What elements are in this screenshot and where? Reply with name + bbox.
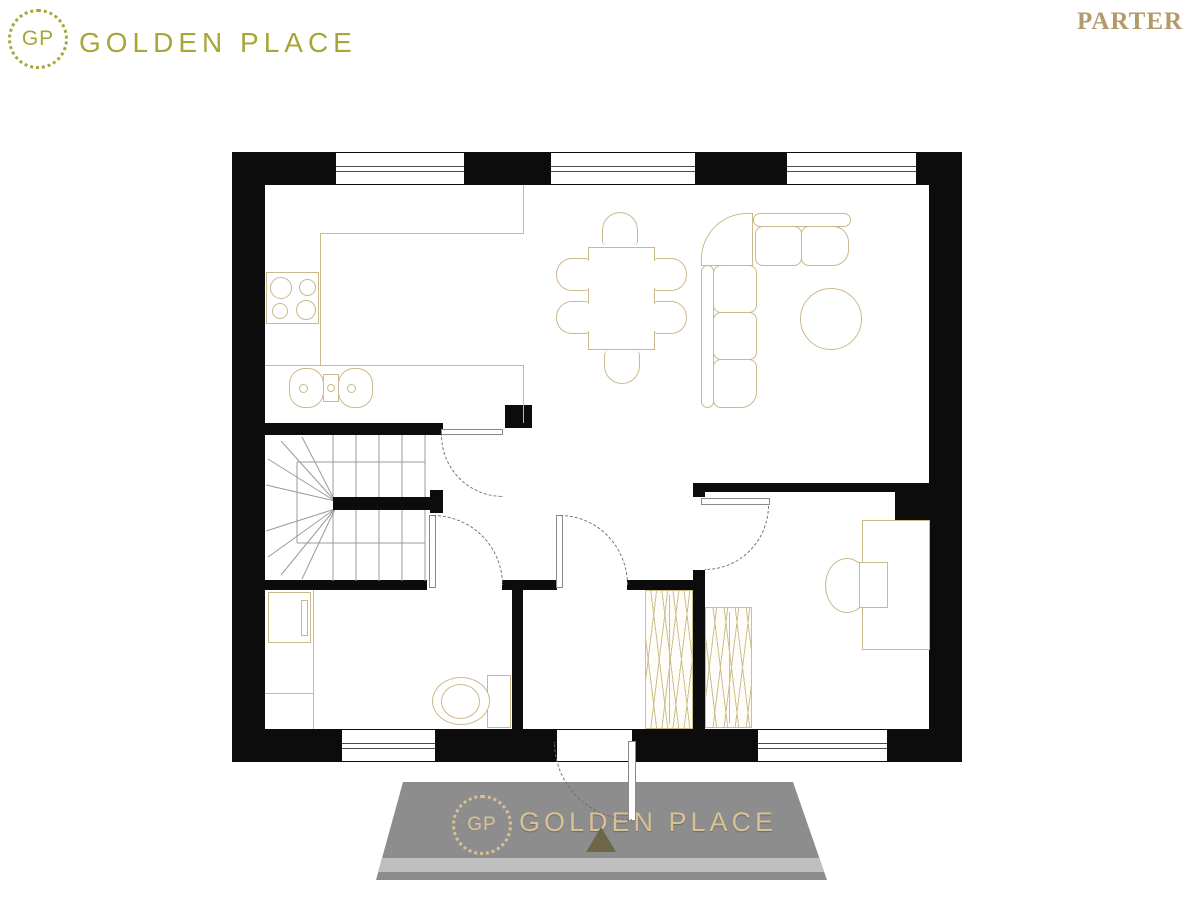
toilet-bowl-inner xyxy=(441,684,480,719)
brand-logo-initials: GP xyxy=(22,27,54,51)
dining-chair xyxy=(654,258,687,291)
dining-chair xyxy=(556,258,589,291)
coffee-table xyxy=(800,288,862,350)
kitchen-counter-edge xyxy=(265,365,524,366)
sink-drain xyxy=(347,384,356,393)
wall-office-west-upper xyxy=(693,483,705,497)
floor-plan-page: GP GOLDEN PLACE PARTER GP GOLDEN PLACE xyxy=(0,0,1200,900)
brand-logo-badge: GP xyxy=(8,9,68,69)
wall-hall-south-1 xyxy=(265,580,427,590)
bathroom-partition xyxy=(313,590,314,729)
kitchen-counter-edge xyxy=(320,233,524,234)
kitchen-door-swing xyxy=(441,435,503,497)
window-bathroom xyxy=(342,730,435,761)
stove-burner xyxy=(272,303,288,319)
sink-drain xyxy=(299,384,308,393)
wall-kitchen-stairs xyxy=(265,423,443,435)
desk-chair-back xyxy=(859,562,888,608)
window-top-3 xyxy=(787,153,916,184)
sofa-cushion xyxy=(713,312,757,360)
sofa-cushion xyxy=(801,226,849,266)
stove-burner xyxy=(296,300,316,320)
kitchen-counter-edge xyxy=(320,233,321,365)
office-wardrobe xyxy=(705,607,752,728)
bathroom-door-swing xyxy=(433,515,503,585)
window-top-2 xyxy=(551,153,695,184)
office-door-swing xyxy=(705,505,769,570)
washbasin-detail xyxy=(301,600,308,636)
wall-bath-hall-divider xyxy=(512,590,523,730)
sink-drain xyxy=(327,384,335,392)
wall-left xyxy=(232,152,265,762)
stove-burner xyxy=(270,277,292,299)
wall-office-pillar xyxy=(895,492,930,522)
toilet-tank xyxy=(487,675,511,728)
wall-corner-block xyxy=(505,405,532,428)
kitchen-counter-edge xyxy=(523,185,524,233)
dining-table xyxy=(588,247,655,350)
staircase xyxy=(265,435,443,581)
sofa-cushion xyxy=(713,265,757,313)
podium-floor-band xyxy=(376,858,827,872)
dining-chair xyxy=(602,212,638,245)
watermark-logo-text: GOLDEN PLACE xyxy=(519,807,777,838)
watermark-logo-initials: GP xyxy=(467,814,496,836)
dining-chair xyxy=(604,351,640,384)
dining-chair xyxy=(556,301,589,334)
wall-office-west-lower xyxy=(693,570,705,730)
entrance-marker-icon xyxy=(586,827,616,852)
hall-wardrobe xyxy=(645,590,693,729)
sofa-cushion xyxy=(755,226,802,266)
hall-door-swing xyxy=(560,515,628,585)
wall-hall-south-2 xyxy=(502,580,557,590)
sofa-cushion xyxy=(713,359,757,408)
sofa-corner xyxy=(701,213,753,266)
brand-logo-text: GOLDEN PLACE xyxy=(79,27,357,59)
floor-label: PARTER xyxy=(1077,8,1183,36)
office-door-leaf xyxy=(701,498,770,505)
kitchen-counter-edge xyxy=(523,365,524,423)
wall-office-north xyxy=(705,483,930,492)
dining-chair xyxy=(654,301,687,334)
window-top-1 xyxy=(336,153,464,184)
sofa-backrest xyxy=(753,213,851,227)
wall-right xyxy=(929,152,962,762)
window-office xyxy=(758,730,887,761)
wall-hall-south-3 xyxy=(627,580,695,590)
watermark-logo-badge: GP xyxy=(452,795,512,855)
stove-burner xyxy=(299,279,316,296)
bathroom-partition xyxy=(265,693,314,694)
